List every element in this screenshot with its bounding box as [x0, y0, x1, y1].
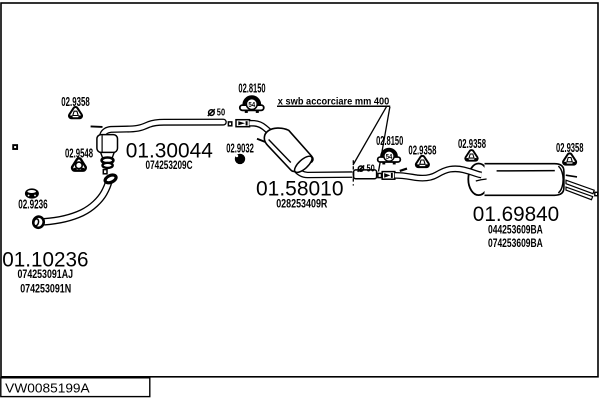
- svg-text:50: 50: [367, 162, 375, 174]
- svg-text:x swb accorciare mm 400: x swb accorciare mm 400: [278, 95, 390, 107]
- svg-text:074253091AJ: 074253091AJ: [18, 267, 74, 281]
- svg-text:074253209C: 074253209C: [146, 158, 193, 172]
- svg-text:074253609BA: 074253609BA: [488, 236, 543, 250]
- svg-text:02.9032: 02.9032: [226, 141, 254, 156]
- svg-text:074253091N: 074253091N: [20, 281, 71, 295]
- svg-text:028253409R: 028253409R: [276, 197, 327, 211]
- svg-text:02.9548: 02.9548: [65, 146, 93, 161]
- svg-text:02.9358: 02.9358: [458, 136, 486, 151]
- svg-text:02.9358: 02.9358: [408, 143, 436, 158]
- svg-text:02.9236: 02.9236: [18, 197, 47, 212]
- svg-text:02.9358: 02.9358: [61, 94, 89, 109]
- svg-text:02.8150: 02.8150: [376, 133, 403, 148]
- svg-text:02.9358: 02.9358: [556, 140, 584, 155]
- svg-text:50: 50: [217, 107, 225, 119]
- svg-text:02.8150: 02.8150: [238, 81, 265, 96]
- svg-text:044253609BA: 044253609BA: [488, 222, 543, 236]
- svg-text:VW0085199A: VW0085199A: [5, 381, 90, 396]
